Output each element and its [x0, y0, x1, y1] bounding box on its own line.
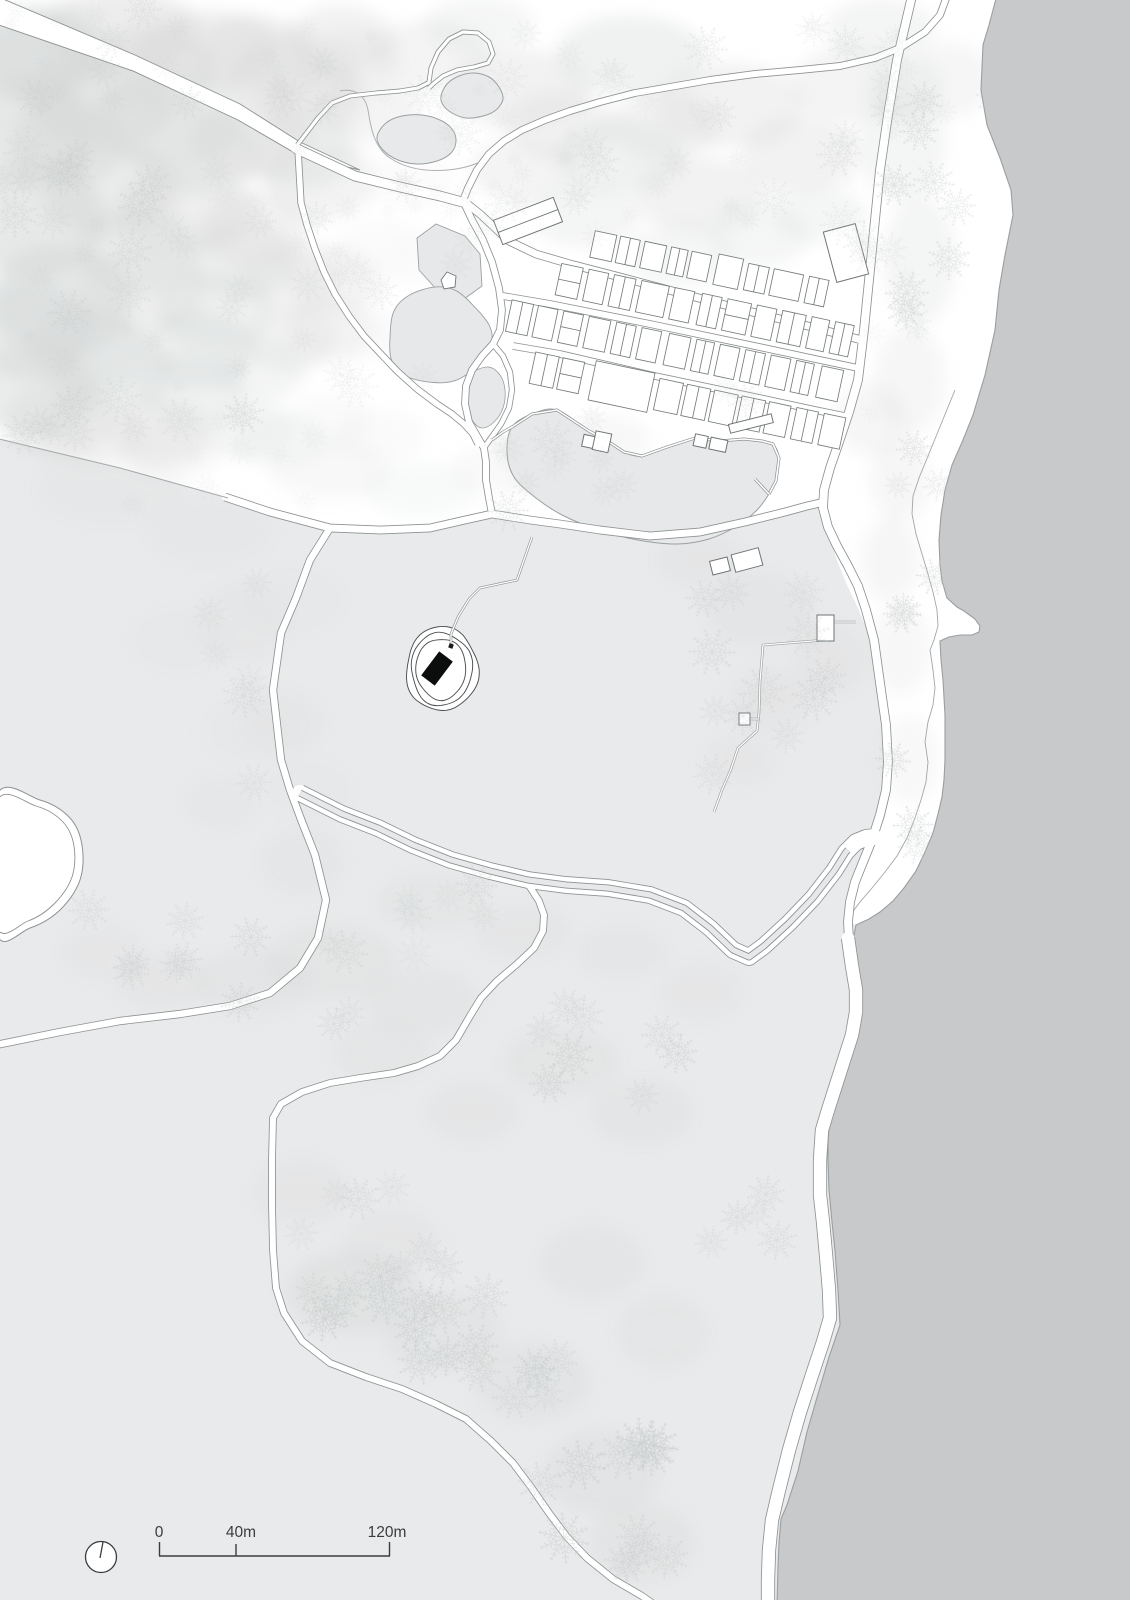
svg-text:120m: 120m: [368, 1524, 407, 1541]
svg-text:40m: 40m: [226, 1524, 256, 1541]
svg-text:0: 0: [155, 1524, 164, 1541]
